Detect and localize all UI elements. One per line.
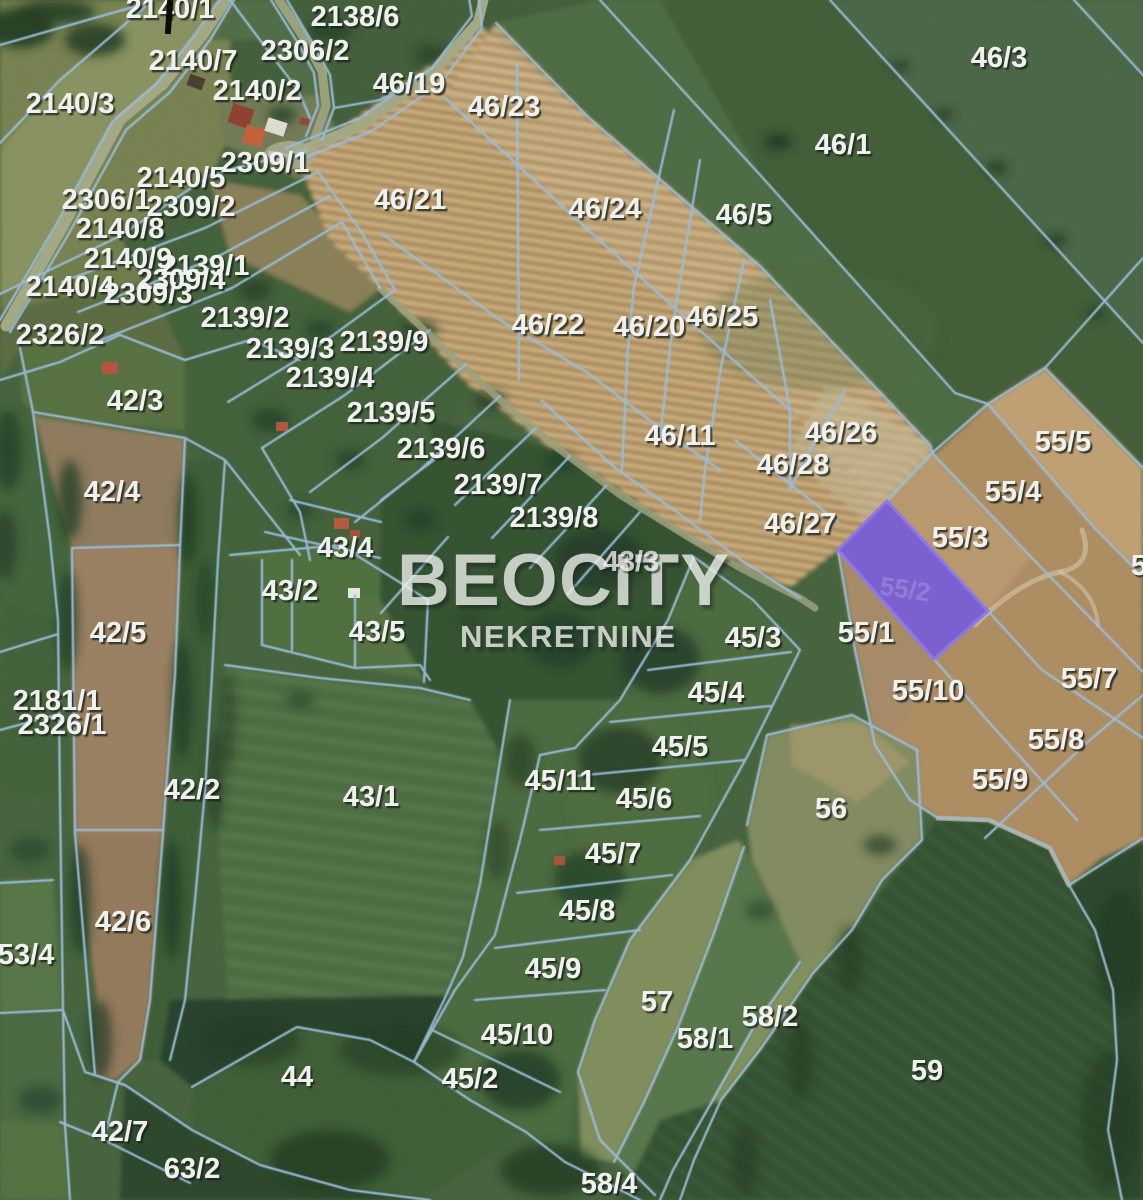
- svg-text:42/6: 42/6: [95, 906, 151, 938]
- svg-text:46/22: 46/22: [512, 309, 585, 341]
- svg-text:2140/3: 2140/3: [26, 88, 115, 120]
- svg-text:2326/2: 2326/2: [16, 319, 105, 351]
- svg-text:45/5: 45/5: [652, 731, 708, 763]
- svg-text:2139/9: 2139/9: [340, 326, 429, 358]
- svg-text:43/4: 43/4: [317, 532, 373, 564]
- svg-text:BEOCITY: BEOCITY: [397, 540, 731, 621]
- svg-text:55/4: 55/4: [985, 476, 1041, 508]
- svg-text:57: 57: [641, 986, 673, 1018]
- svg-text:2326/1: 2326/1: [18, 709, 107, 741]
- svg-text:46/25: 46/25: [686, 301, 759, 333]
- svg-text:5: 5: [1131, 550, 1143, 582]
- svg-text:2139/4: 2139/4: [286, 362, 375, 394]
- svg-text:42/2: 42/2: [164, 774, 220, 806]
- svg-text:58/4: 58/4: [581, 1168, 637, 1200]
- svg-text:55/8: 55/8: [1028, 724, 1084, 756]
- svg-text:42/5: 42/5: [90, 617, 146, 649]
- svg-text:53/4: 53/4: [0, 939, 54, 971]
- svg-text:2140/8: 2140/8: [76, 213, 165, 245]
- svg-text:2140/7: 2140/7: [149, 45, 238, 77]
- svg-text:45/8: 45/8: [559, 895, 615, 927]
- svg-text:44: 44: [281, 1061, 313, 1093]
- svg-text:58/2: 58/2: [742, 1001, 798, 1033]
- svg-text:45/3: 45/3: [725, 622, 781, 654]
- svg-text:45/4: 45/4: [688, 677, 744, 709]
- svg-text:46/20: 46/20: [613, 311, 686, 343]
- svg-text:2139/2: 2139/2: [201, 302, 290, 334]
- svg-text:46/11: 46/11: [645, 420, 716, 452]
- svg-text:45/6: 45/6: [616, 783, 672, 815]
- svg-text:55/5: 55/5: [1035, 426, 1091, 458]
- svg-text:46/23: 46/23: [468, 91, 541, 123]
- svg-text:45/2: 45/2: [442, 1063, 498, 1095]
- svg-text:43/2: 43/2: [262, 575, 318, 607]
- svg-text:2139/3: 2139/3: [246, 333, 335, 365]
- svg-text:2140/4: 2140/4: [26, 271, 115, 303]
- svg-text:2139/6: 2139/6: [397, 433, 486, 465]
- svg-text:43/3: 43/3: [603, 546, 659, 578]
- svg-text:46/28: 46/28: [757, 449, 830, 481]
- svg-text:46/24: 46/24: [569, 193, 642, 225]
- svg-text:2139/8: 2139/8: [510, 502, 599, 534]
- svg-text:43/5: 43/5: [349, 616, 405, 648]
- svg-text:46/5: 46/5: [716, 199, 772, 231]
- svg-text:42/7: 42/7: [92, 1116, 148, 1148]
- svg-text:46/21: 46/21: [374, 184, 447, 216]
- svg-text:46/19: 46/19: [373, 68, 446, 100]
- svg-text:46/3: 46/3: [971, 42, 1027, 74]
- svg-text:55/7: 55/7: [1061, 663, 1117, 695]
- svg-text:58/1: 58/1: [677, 1023, 733, 1055]
- svg-text:42/4: 42/4: [84, 476, 140, 508]
- svg-text:46/26: 46/26: [805, 417, 878, 449]
- svg-text:43/1: 43/1: [343, 781, 399, 813]
- svg-text:55/1: 55/1: [838, 617, 894, 649]
- svg-text:NEKRETNINE: NEKRETNINE: [460, 619, 682, 654]
- svg-text:45/11: 45/11: [525, 765, 596, 797]
- svg-text:2306/1: 2306/1: [62, 184, 151, 216]
- svg-text:42/3: 42/3: [107, 385, 163, 417]
- svg-text:55/10: 55/10: [892, 675, 965, 707]
- svg-text:59: 59: [911, 1055, 943, 1087]
- svg-text:55/3: 55/3: [932, 522, 988, 554]
- svg-text:2140/2: 2140/2: [213, 75, 302, 107]
- svg-text:2306/2: 2306/2: [261, 35, 350, 67]
- svg-text:2138/6: 2138/6: [311, 1, 400, 33]
- svg-text:46/1: 46/1: [815, 129, 871, 161]
- svg-text:2139/5: 2139/5: [347, 397, 436, 429]
- svg-text:2309/1: 2309/1: [221, 147, 310, 179]
- svg-text:2309/3: 2309/3: [104, 278, 193, 310]
- svg-text:63/2: 63/2: [164, 1153, 220, 1185]
- svg-text:56: 56: [815, 793, 847, 825]
- svg-text:45/7: 45/7: [585, 838, 641, 870]
- svg-text:46/27: 46/27: [764, 508, 837, 540]
- svg-text:45/9: 45/9: [525, 953, 581, 985]
- svg-text:45/10: 45/10: [481, 1019, 554, 1051]
- svg-text:2139/7: 2139/7: [454, 469, 543, 501]
- svg-text:55/9: 55/9: [972, 764, 1028, 796]
